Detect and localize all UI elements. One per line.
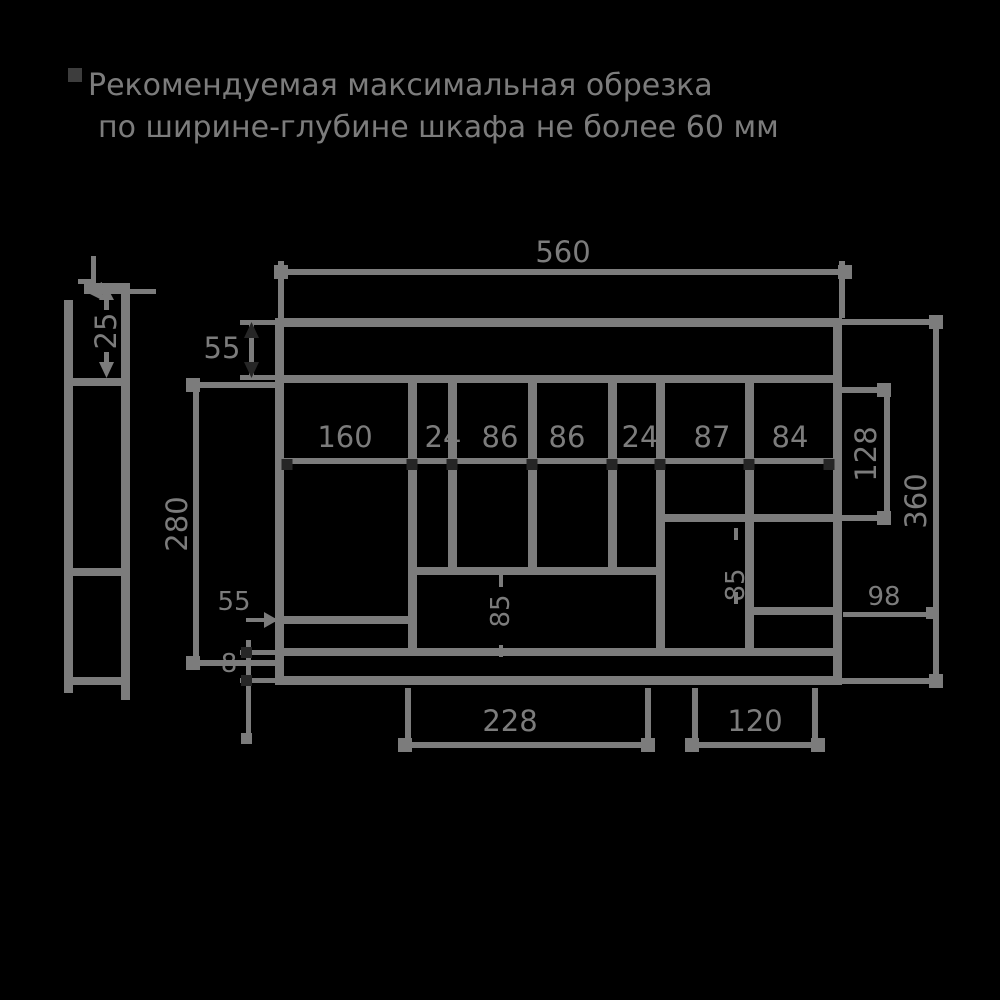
dim-right-gap-label: 98: [867, 582, 900, 612]
dim-side-top-label: 25: [89, 313, 123, 350]
dim-inner-left-height-label: 280: [160, 496, 194, 551]
dim-width-1-label: 160: [317, 420, 372, 454]
dim-bottom-left-width-label: 228: [482, 704, 537, 738]
note-line-2: по ширине-глубине шкафа не более 60 мм: [98, 110, 779, 145]
dim-top-band-label: 55: [204, 331, 241, 365]
dim-width-5-label: 24: [622, 420, 659, 454]
dim-bottom-right-width-label: 120: [727, 704, 782, 738]
dim-width-6-label: 87: [694, 420, 731, 454]
dim-inner-vertical-left-label: 85: [486, 594, 516, 627]
technical-drawing: Рекомендуемая максимальная обрезка по ши…: [0, 0, 1000, 1000]
note-line-1: Рекомендуемая максимальная обрезка: [88, 68, 713, 103]
drawing-page: Рекомендуемая максимальная обрезка по ши…: [0, 0, 1000, 1000]
dim-top-width-label: 560: [535, 235, 590, 269]
background: [0, 0, 1000, 1000]
dim-bottom-panel-label: 8: [221, 649, 238, 679]
dim-width-4-label: 86: [549, 420, 586, 454]
note-bullet-icon: [68, 68, 82, 82]
dim-width-7-label: 84: [772, 420, 809, 454]
dim-width-2-label: 24: [425, 420, 462, 454]
dim-left-shelf-label: 55: [217, 587, 250, 617]
dim-inner-vertical-right-label: 85: [721, 568, 751, 601]
dim-inner-right-height-label: 128: [849, 426, 883, 481]
dim-width-3-label: 86: [482, 420, 519, 454]
dim-outer-height-label: 360: [899, 473, 933, 528]
